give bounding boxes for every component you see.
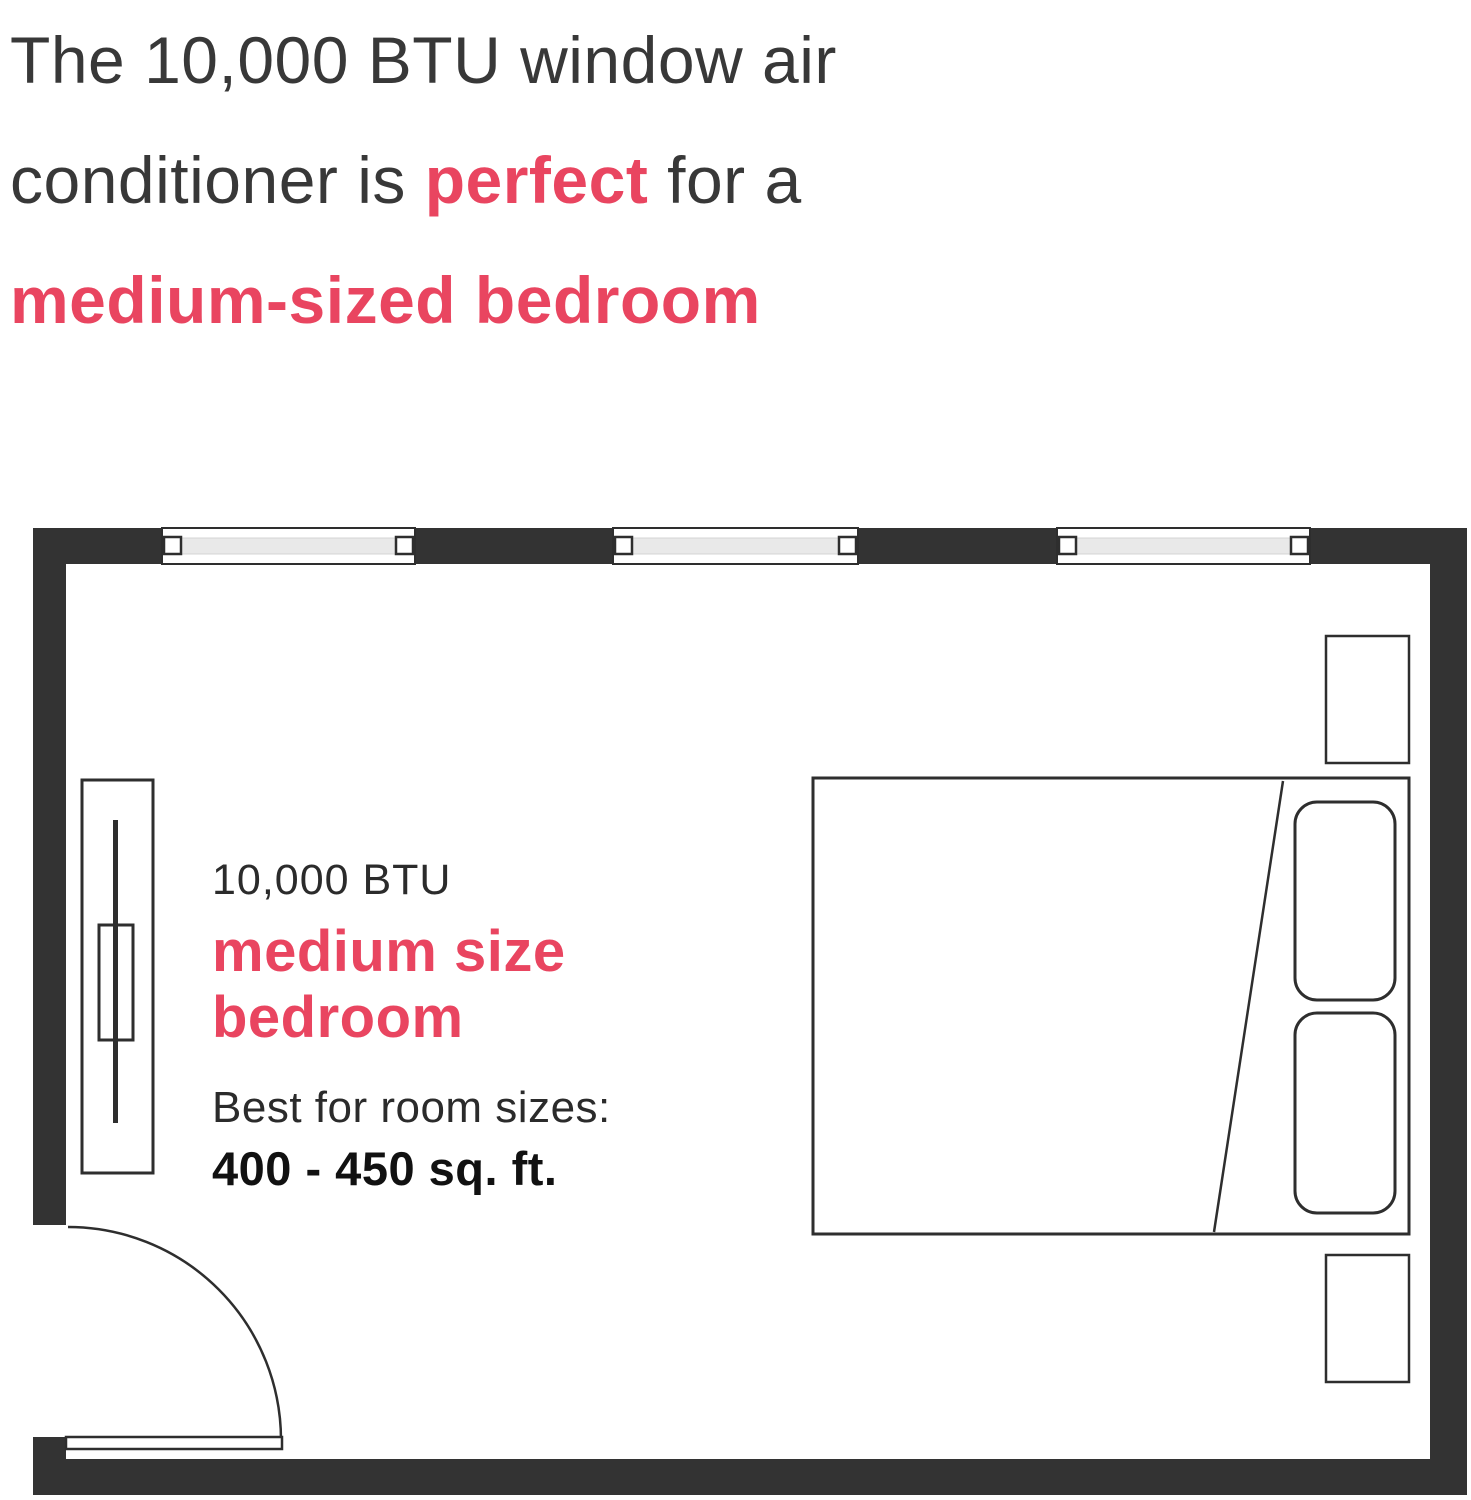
window-jamb-right (839, 537, 856, 554)
door (33, 1225, 282, 1449)
room-label-range: 400 - 450 sq. ft. (212, 1141, 732, 1196)
window-3 (1057, 528, 1310, 564)
nightstand-top (1326, 636, 1409, 763)
window-glass (616, 538, 855, 554)
window-1 (162, 528, 415, 564)
room-label-size: medium size bedroom (212, 919, 732, 1051)
window-glass (165, 538, 412, 554)
pillow-top (1295, 802, 1395, 1000)
floor-plan (0, 0, 1471, 1500)
window-2 (613, 528, 858, 564)
window-jamb-right (1291, 537, 1308, 554)
window-jamb-left (615, 537, 632, 554)
right-wall (1430, 528, 1467, 1495)
pillow-bottom (1295, 1013, 1395, 1213)
door-opening (33, 1225, 66, 1437)
nightstand-bottom (1326, 1255, 1409, 1382)
infographic-canvas: The 10,000 BTU window air conditioner is… (0, 0, 1471, 1500)
window-jamb-left (164, 537, 181, 554)
window-jamb-right (396, 537, 413, 554)
room-label-size-line2: bedroom (212, 985, 732, 1051)
room-label-size-line1: medium size (212, 919, 732, 985)
window-glass (1060, 538, 1307, 554)
ac-unit (82, 780, 153, 1173)
ac-unit-vent-line (113, 820, 118, 1123)
window-jamb-left (1059, 537, 1076, 554)
room-label-best-for: Best for room sizes: (212, 1083, 732, 1133)
door-leaf (66, 1437, 282, 1449)
bed (813, 778, 1409, 1234)
room-label-btu: 10,000 BTU (212, 856, 732, 905)
bottom-wall (33, 1459, 1467, 1495)
door-swing-arc (68, 1227, 281, 1440)
room-label: 10,000 BTU medium size bedroom Best for … (212, 856, 732, 1196)
